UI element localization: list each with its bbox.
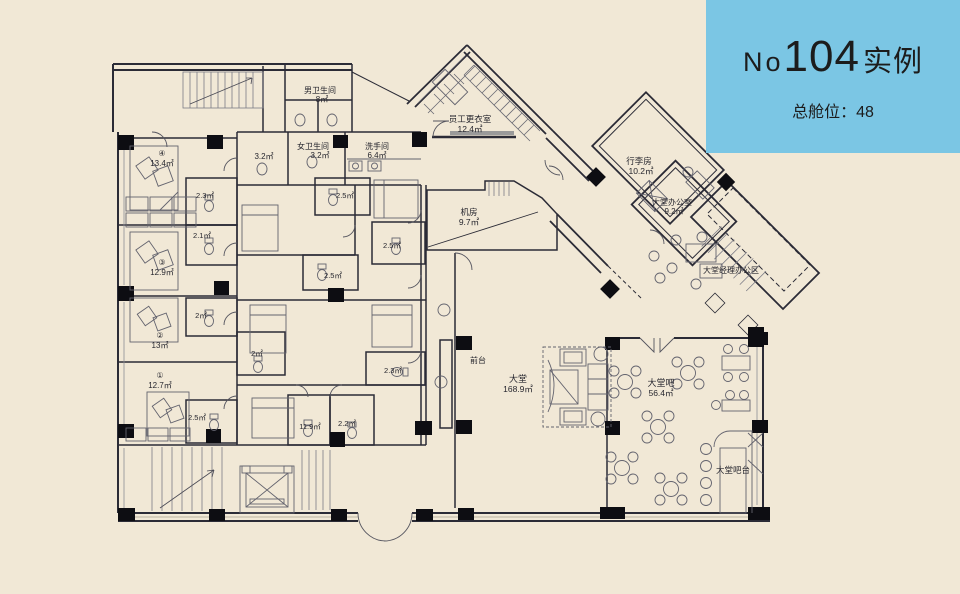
floor-plan-page: 男卫生间8㎡女卫生间3.2㎡洗手间6.4㎡3.2㎡员工更衣室12.4㎡④13.4… <box>0 0 960 594</box>
room-label: 168.9㎡ <box>503 384 533 394</box>
bed <box>130 146 178 210</box>
room-label: 2.5㎡ <box>336 191 354 200</box>
room-label: 男卫生间 <box>304 85 336 95</box>
room-label: 2.5㎡ <box>188 413 206 422</box>
room-label: 2.2㎡ <box>338 419 356 428</box>
room-label: ③ <box>158 258 165 267</box>
room-label: 大堂经理办公区 <box>703 265 759 275</box>
room-label: 13㎡ <box>152 341 169 350</box>
room-label: 2.1㎡ <box>193 231 211 240</box>
sofa-cluster <box>543 347 611 427</box>
room-label: 大堂 <box>509 373 527 384</box>
toilets <box>205 114 409 439</box>
room-label: 大堂吧台 <box>716 465 750 475</box>
interior-walls <box>118 64 607 508</box>
room-label: 2.5㎡ <box>324 271 342 280</box>
room-label: 大堂办公室 <box>652 197 692 207</box>
room-label: 2㎡ <box>195 311 207 320</box>
sinks <box>347 159 421 171</box>
title-prefix: No <box>743 47 784 78</box>
room-label: 8㎡ <box>316 95 328 104</box>
lobby-office-outline <box>632 161 737 266</box>
room-label: 10.2㎡ <box>628 166 654 176</box>
room-label: 12.9㎡ <box>150 268 174 277</box>
plan-title: No 104 实例 <box>743 32 923 82</box>
room-label: 大堂吧 <box>647 377 674 388</box>
capacity-text: 总舱位：48 <box>792 98 874 122</box>
title-suffix: 实例 <box>863 38 923 80</box>
bed <box>250 305 286 353</box>
room-label: 女卫生间 <box>297 141 329 151</box>
room-label: ② <box>156 331 163 340</box>
room-label: 机房 <box>460 207 477 217</box>
room-label: 洗手间 <box>365 141 389 151</box>
room-label: 6.4㎡ <box>367 151 386 160</box>
info-box: No 104 实例 总舱位：48 <box>706 0 960 153</box>
rect-tables <box>712 345 751 412</box>
bed <box>130 298 178 342</box>
manager-area <box>649 232 722 289</box>
room-label: 9.2㎡ <box>664 207 683 216</box>
room-label: 12.4㎡ <box>457 124 483 134</box>
room-label: 2.3㎡ <box>196 191 214 200</box>
room-label: 员工更衣室 <box>449 114 492 124</box>
room-label: 56.4㎡ <box>648 388 674 398</box>
room-label: 9.7㎡ <box>459 217 480 227</box>
room-label: 3.2㎡ <box>254 152 273 161</box>
room-labels: 男卫生间8㎡女卫生间3.2㎡洗手间6.4㎡3.2㎡员工更衣室12.4㎡④13.4… <box>148 85 759 475</box>
bed <box>130 232 178 290</box>
title-number: 104 <box>784 32 860 82</box>
room-label: ④ <box>158 149 165 158</box>
room-label: 11.9㎡ <box>299 422 321 431</box>
room-label: 13.4㎡ <box>150 159 174 168</box>
exterior-walls <box>113 64 770 521</box>
room-label: ① <box>156 371 163 380</box>
room-label: 12.7㎡ <box>148 381 172 390</box>
room-label: 行李房 <box>626 156 652 166</box>
room-label: 3.2㎡ <box>310 151 329 160</box>
room-label: 2.3㎡ <box>384 366 402 375</box>
bed <box>242 205 278 251</box>
room-label: 2.5㎡ <box>383 241 401 250</box>
elevator <box>240 466 294 513</box>
room-label: 2㎡ <box>251 349 263 358</box>
room-label: 前台 <box>470 355 486 365</box>
bed <box>372 305 412 347</box>
